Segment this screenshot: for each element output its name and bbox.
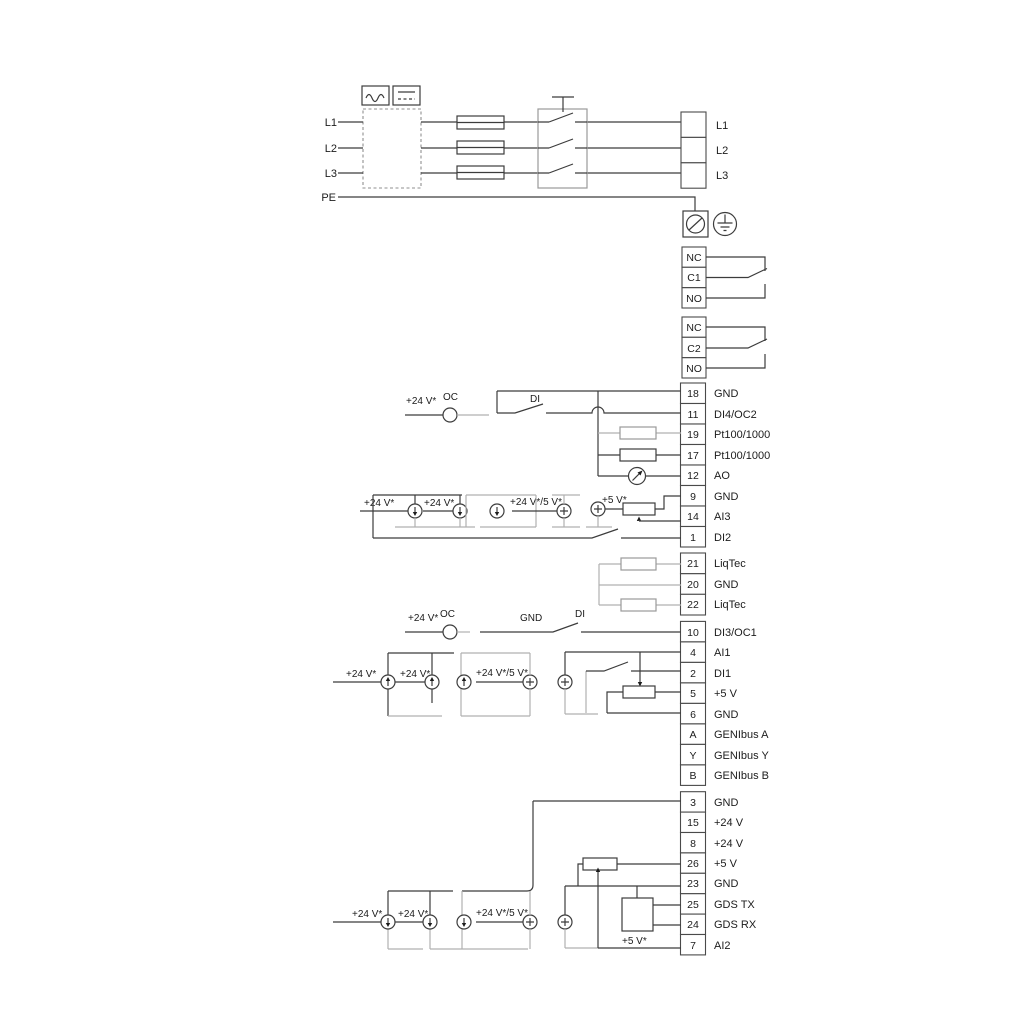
terminal-number: 21 bbox=[687, 558, 699, 570]
potentiometer-icon bbox=[583, 858, 617, 870]
terminal-number: NO bbox=[686, 293, 702, 305]
switch-contact-icon bbox=[373, 529, 681, 538]
analog-output-meter-icon bbox=[629, 468, 646, 485]
switch-contact-icon bbox=[497, 404, 681, 413]
current-source-icon bbox=[381, 675, 395, 689]
terminal-label: AI1 bbox=[714, 647, 731, 659]
sensor-option-module: +24 V* +24 V* +24 V*/5 V* bbox=[333, 652, 681, 716]
section2-circuit: +24 V* OC GND DI +24 V* +24 V* +24 V*/5 … bbox=[333, 609, 681, 716]
terminal-label: +5 V bbox=[714, 858, 738, 870]
terminal-label: Pt100/1000 bbox=[714, 429, 770, 441]
current-source-icon bbox=[425, 675, 439, 689]
plus24v-label: +24 V* bbox=[364, 498, 394, 509]
terminal-number: 23 bbox=[687, 878, 699, 890]
wiring-diagram-canvas: L1 L2 L3 PE bbox=[0, 0, 1024, 1024]
terminal-number: 15 bbox=[687, 817, 699, 829]
terminal-label: GENIbus Y bbox=[714, 750, 769, 762]
resistor-icon bbox=[621, 558, 656, 570]
open-collector-icon bbox=[443, 625, 457, 639]
terminal-label: GND bbox=[714, 491, 739, 503]
terminal-number: C1 bbox=[687, 272, 701, 284]
terminal-label: AI2 bbox=[714, 940, 731, 952]
switch-contact-icon bbox=[480, 623, 681, 632]
terminal-label: AI3 bbox=[714, 511, 731, 523]
pe-wire bbox=[338, 197, 695, 211]
terminal-label: Pt100/1000 bbox=[714, 450, 770, 462]
terminal-number: 5 bbox=[690, 688, 696, 700]
resistor-icon bbox=[620, 427, 656, 439]
terminal-number: 9 bbox=[690, 491, 696, 503]
terminal-number: 17 bbox=[687, 450, 699, 462]
sensor-option-module: +24 V* +24 V* +24 V*/5 V* +5 V* bbox=[333, 858, 681, 949]
current-source-icon bbox=[423, 915, 437, 929]
pe-label: PE bbox=[321, 192, 336, 204]
earth-ground-icon bbox=[714, 213, 737, 236]
phase-l1-label: L1 bbox=[325, 117, 337, 129]
power-section: L1 L2 L3 PE bbox=[321, 86, 736, 237]
plus24v-5v-label: +24 V*/5 V* bbox=[476, 668, 528, 679]
terminal-number: 10 bbox=[687, 627, 699, 639]
main-disconnect-switch-icon bbox=[538, 97, 587, 188]
terminal-number: B bbox=[689, 770, 696, 782]
terminal-number: 24 bbox=[687, 919, 699, 931]
terminal-number: 1 bbox=[690, 532, 696, 544]
terminal-number: 25 bbox=[687, 899, 699, 911]
oc-label: OC bbox=[440, 609, 455, 620]
terminal-number: NC bbox=[686, 252, 702, 264]
terminal-label: L2 bbox=[716, 145, 728, 157]
terminal-label: GDS TX bbox=[714, 899, 755, 911]
terminal-label: +5 V bbox=[714, 688, 738, 700]
phase-l2-label: L2 bbox=[325, 143, 337, 155]
terminal-number: 3 bbox=[690, 797, 696, 809]
terminal-number: 20 bbox=[687, 579, 699, 591]
relay1-block: NC C1 NO bbox=[682, 247, 767, 308]
plus24v-5v-label: +24 V*/5 V* bbox=[476, 908, 528, 919]
terminal-strip-d: 3 15 8 26 23 25 24 7 GND +24 V +24 V +5 … bbox=[681, 792, 757, 955]
gds-sensor-box bbox=[622, 886, 681, 931]
terminal-label: DI1 bbox=[714, 668, 731, 680]
terminal-label: DI4/OC2 bbox=[714, 409, 757, 421]
fuse-icon bbox=[457, 116, 504, 129]
resistor-icon bbox=[620, 449, 656, 461]
resistor-icon bbox=[621, 599, 656, 611]
plus24v-label: +24 V* bbox=[408, 613, 438, 624]
terminal-number: Y bbox=[689, 750, 696, 762]
voltage-source-icon bbox=[523, 675, 537, 689]
terminal-cell bbox=[681, 163, 706, 188]
terminal-label: GND bbox=[714, 579, 739, 591]
open-collector-icon bbox=[443, 408, 457, 422]
terminal-number: 8 bbox=[690, 838, 696, 850]
emc-filter-box bbox=[363, 109, 421, 188]
terminal-number: A bbox=[689, 729, 696, 741]
plus24v-label: +24 V* bbox=[406, 396, 436, 407]
potentiometer-icon bbox=[623, 686, 655, 698]
current-source-icon bbox=[453, 504, 467, 518]
relay2-block: NC C2 NO bbox=[682, 317, 767, 378]
terminal-label: DI3/OC1 bbox=[714, 627, 757, 639]
voltage-source-icon bbox=[591, 502, 605, 516]
terminal-number: 6 bbox=[690, 709, 696, 721]
voltage-source-icon bbox=[523, 915, 537, 929]
terminal-number: 14 bbox=[687, 511, 699, 523]
terminal-label: DI2 bbox=[714, 532, 731, 544]
terminal-number: 4 bbox=[690, 647, 696, 659]
plus24v-label: +24 V* bbox=[352, 909, 382, 920]
phase-wires bbox=[338, 122, 681, 173]
sensor-option-module: +24 V* +24 V* +24 V*/5 V* +5 V* bbox=[360, 495, 681, 538]
terminal-number: 19 bbox=[687, 429, 699, 441]
relay-contact-icon bbox=[706, 327, 767, 368]
terminal-label: LiqTec bbox=[714, 599, 746, 611]
current-source-icon bbox=[408, 504, 422, 518]
terminal-label: GND bbox=[714, 797, 739, 809]
terminal-label: GENIbus B bbox=[714, 770, 769, 782]
terminal-label: GND bbox=[714, 709, 739, 721]
terminal-label: GND bbox=[714, 388, 739, 400]
fuse-icon bbox=[457, 141, 504, 154]
terminal-number: 18 bbox=[687, 388, 699, 400]
terminal-strip-a: 18 11 19 17 12 9 14 1 GND DI4/OC2 Pt100/… bbox=[681, 383, 771, 547]
terminal-label: L3 bbox=[716, 170, 728, 182]
terminal-number: 26 bbox=[687, 858, 699, 870]
terminal-number: 7 bbox=[690, 940, 696, 952]
terminal-strip-c: 10 4 2 5 6 A Y B DI3/OC1 AI1 DI1 +5 V GN… bbox=[681, 621, 770, 785]
dc-symbol-icon bbox=[393, 86, 420, 105]
terminal-number: 11 bbox=[688, 409, 699, 421]
terminal-label: GND bbox=[714, 878, 739, 890]
wiring-diagram: L1 L2 L3 PE bbox=[0, 0, 1024, 1024]
terminal-number: NO bbox=[686, 363, 702, 375]
voltage-source-icon bbox=[558, 915, 572, 929]
terminal-label: GDS RX bbox=[714, 919, 757, 931]
voltage-source-icon bbox=[557, 504, 571, 518]
terminal-strip-b: 21 20 22 LiqTec GND LiqTec bbox=[681, 553, 747, 615]
cable-gland-icon bbox=[683, 211, 708, 237]
voltage-source-icon bbox=[558, 675, 572, 689]
plus24v-label: +24 V* bbox=[346, 669, 376, 680]
mains-terminal-block: L1 L2 L3 bbox=[681, 112, 728, 188]
di-label: DI bbox=[575, 609, 585, 620]
terminal-label: +24 V bbox=[714, 817, 744, 829]
fuse-icon bbox=[457, 166, 504, 179]
plus5v-label: +5 V* bbox=[622, 936, 647, 947]
di-label: DI bbox=[530, 394, 540, 405]
terminal-number: 12 bbox=[687, 470, 699, 482]
terminal-number: 22 bbox=[687, 599, 699, 611]
terminal-label: L1 bbox=[716, 120, 728, 132]
liqtec-circuit bbox=[599, 558, 681, 611]
terminal-number: C2 bbox=[687, 343, 701, 355]
terminal-label: AO bbox=[714, 470, 730, 482]
terminal-label: LiqTec bbox=[714, 558, 746, 570]
terminal-label: +24 V bbox=[714, 838, 744, 850]
potentiometer-icon bbox=[623, 503, 655, 515]
terminal-cell bbox=[681, 137, 706, 162]
section3-circuit: +24 V* +24 V* +24 V*/5 V* +5 V* bbox=[333, 801, 681, 949]
plus24v-label: +24 V* bbox=[424, 498, 454, 509]
current-source-icon bbox=[457, 915, 471, 929]
terminal-label: GENIbus A bbox=[714, 729, 769, 741]
oc-label: OC bbox=[443, 392, 458, 403]
section1-circuit: +24 V* OC DI +24 V* +24 V* +24 V*/5 V* +… bbox=[360, 391, 681, 538]
current-source-icon bbox=[490, 504, 504, 518]
phase-l3-label: L3 bbox=[325, 168, 337, 180]
terminal-number: NC bbox=[686, 322, 702, 334]
relay-contact-icon bbox=[706, 257, 767, 298]
gnd-label: GND bbox=[520, 613, 542, 624]
current-source-icon bbox=[381, 915, 395, 929]
terminal-cell bbox=[681, 112, 706, 137]
switch-contact-icon bbox=[586, 662, 681, 671]
ac-sine-icon bbox=[362, 86, 389, 105]
current-source-icon bbox=[457, 675, 471, 689]
terminal-number: 2 bbox=[690, 668, 696, 680]
